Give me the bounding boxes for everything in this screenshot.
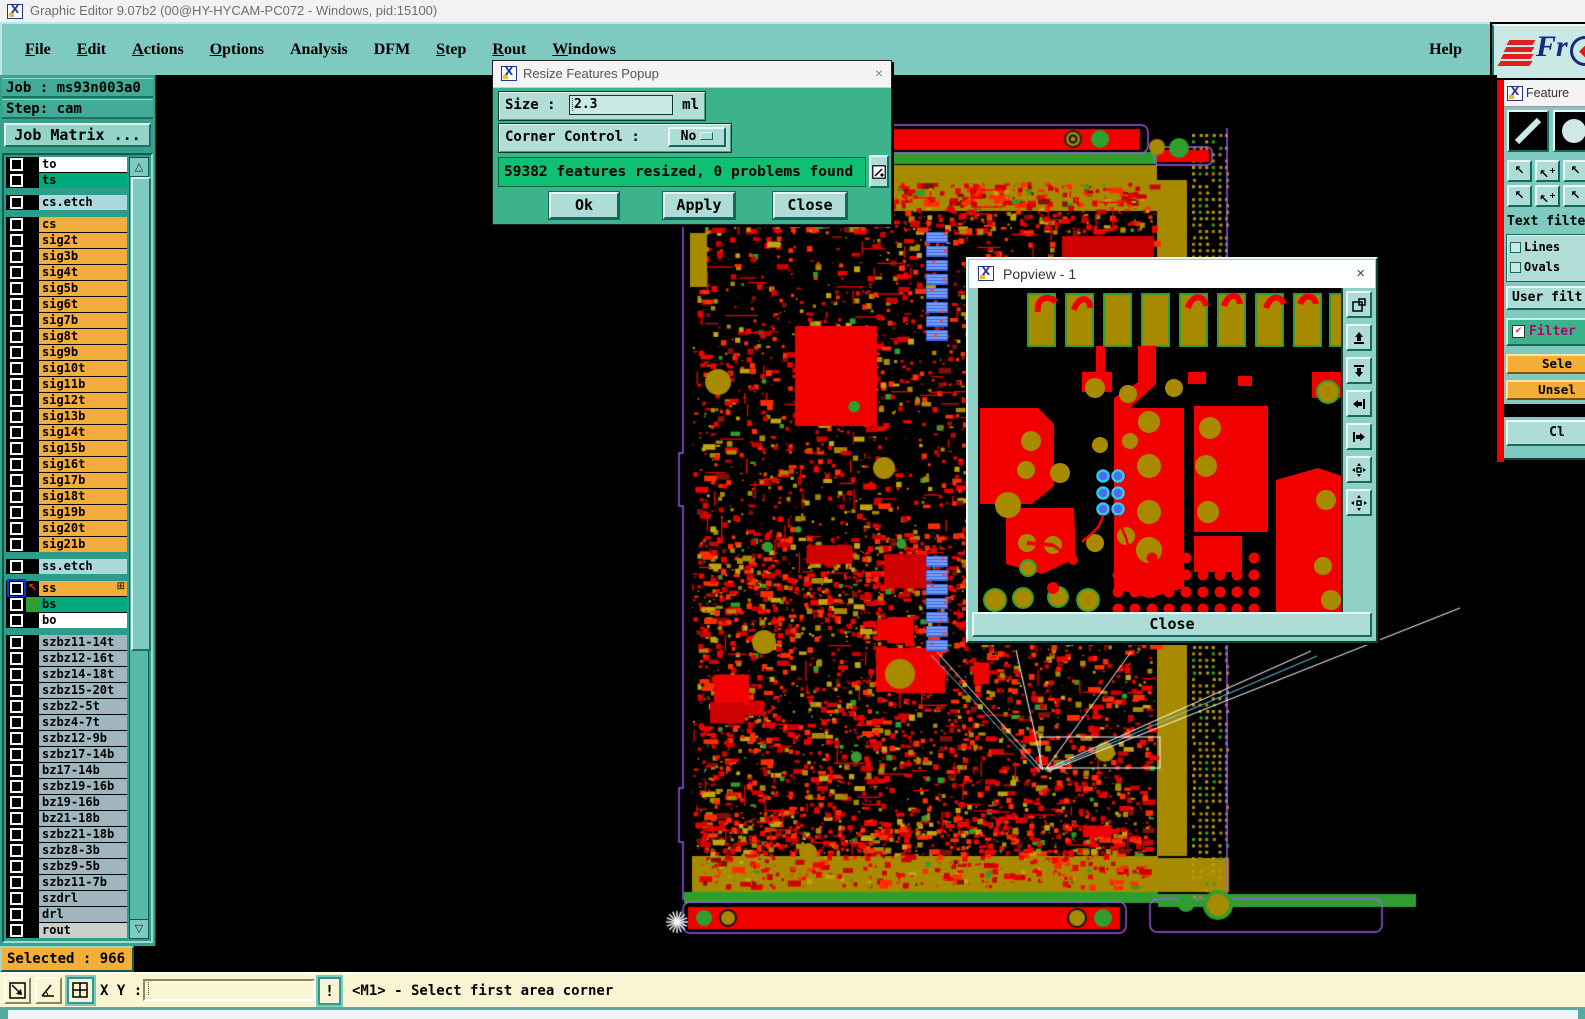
logo-text: Fr xyxy=(1536,30,1568,64)
angle-icon xyxy=(40,982,57,999)
layer-name[interactable]: sig8t xyxy=(39,329,127,344)
layer-row[interactable]: drl xyxy=(6,907,127,922)
popview-zoom-out-button[interactable] xyxy=(1346,489,1372,516)
layer-checkbox[interactable] xyxy=(6,651,26,666)
layer-checkbox[interactable] xyxy=(6,597,26,612)
layer-checkbox[interactable] xyxy=(6,715,26,730)
layer-name[interactable]: drl xyxy=(39,907,127,922)
layer-spacer xyxy=(26,329,39,344)
layer-row[interactable]: sig11b xyxy=(6,377,127,392)
popview-pan-up-button[interactable] xyxy=(1346,324,1372,351)
app-icon: X xyxy=(501,66,517,81)
menu-actions[interactable]: Actions xyxy=(119,38,197,62)
layer-spacer xyxy=(26,265,39,280)
layer-row[interactable]: ts xyxy=(6,173,127,188)
size-label: Size : xyxy=(505,97,556,113)
layer-checkbox[interactable] xyxy=(6,157,26,172)
layer-name[interactable]: sig9b xyxy=(39,345,127,360)
xy-label: X Y : xyxy=(100,983,142,999)
layer-name[interactable]: sig6t xyxy=(39,297,127,312)
layer-name[interactable]: szbz12-9b xyxy=(39,731,127,746)
size-input[interactable]: 2.3 xyxy=(569,95,673,115)
layer-row[interactable]: bs xyxy=(6,597,127,612)
application-window: X Graphic Editor 9.07b2 (00@HY-HYCAM-PC0… xyxy=(0,0,1585,1019)
layer-name[interactable]: sig12t xyxy=(39,393,127,408)
layer-row[interactable]: sig19b xyxy=(6,505,127,520)
resize-result-message: 59382 features resized, 0 problems found xyxy=(498,157,866,187)
layer-checkbox[interactable] xyxy=(6,473,26,488)
layer-grid-icon: ⊞ xyxy=(117,581,125,592)
menu-items: FileEditActionsOptionsAnalysisDFMStepRou… xyxy=(12,38,629,62)
layer-row[interactable]: ↖ss⊞ xyxy=(6,581,127,596)
layer-checkbox[interactable] xyxy=(6,345,26,360)
layer-name[interactable]: sig16t xyxy=(39,457,127,472)
layer-checkbox[interactable] xyxy=(6,233,26,248)
layer-spacer xyxy=(26,683,39,698)
layer-spacer xyxy=(26,489,39,504)
layer-checkbox[interactable] xyxy=(6,265,26,280)
layer-row[interactable]: sig7b xyxy=(6,313,127,328)
layer-row[interactable]: bz21-18b xyxy=(6,811,127,826)
layer-spacer xyxy=(26,747,39,762)
option-menu-icon xyxy=(700,132,713,140)
layer-name[interactable]: szbz14-18t xyxy=(39,667,127,682)
layer-checkbox[interactable] xyxy=(6,195,26,210)
layer-row[interactable]: sig8t xyxy=(6,329,127,344)
layer-spacer xyxy=(26,811,39,826)
layer-name[interactable]: sig5b xyxy=(39,281,127,296)
unselect-extra-button[interactable]: ↖ xyxy=(1563,185,1585,207)
logo-ring-icon xyxy=(1570,36,1585,66)
layer-row[interactable]: sig21b xyxy=(6,537,127,552)
layer-spacer xyxy=(26,715,39,730)
layer-spacer xyxy=(26,345,39,360)
layer-spacer xyxy=(26,473,39,488)
layer-row[interactable]: bz19-16b xyxy=(6,795,127,810)
layer-name[interactable]: sig10t xyxy=(39,361,127,376)
layer-spacer xyxy=(26,249,39,264)
layer-name[interactable]: cs xyxy=(39,217,127,232)
layer-checkbox[interactable] xyxy=(6,581,26,596)
menu-edit[interactable]: Edit xyxy=(64,38,119,62)
layer-checkbox[interactable] xyxy=(6,635,26,650)
select-extra-button[interactable]: ↖ xyxy=(1563,160,1585,182)
layer-name[interactable]: szbz17-14b xyxy=(39,747,127,762)
layer-name[interactable]: szbz21-18b xyxy=(39,827,127,842)
layer-checkbox[interactable] xyxy=(6,699,26,714)
layer-checkbox[interactable] xyxy=(6,923,26,938)
shape-filter-frame: Lines Ovals xyxy=(1506,234,1585,282)
layer-row[interactable]: szbz19-16b xyxy=(6,779,127,794)
popview-copy-window-button[interactable] xyxy=(1346,291,1372,318)
popview-window: X Popview - 1 × xyxy=(966,257,1378,643)
layer-spacer xyxy=(26,731,39,746)
layer-row[interactable]: sig15b xyxy=(6,441,127,456)
layer-spacer xyxy=(26,763,39,778)
layer-name[interactable]: sig13b xyxy=(39,409,127,424)
layer-checkbox[interactable] xyxy=(6,667,26,682)
ok-button[interactable]: Ok xyxy=(549,192,619,219)
layer-name[interactable]: ts xyxy=(39,173,127,188)
scroll-up-icon[interactable]: △ xyxy=(130,158,148,177)
layer-spacer xyxy=(26,457,39,472)
features-panel-title-bar[interactable]: X Feature xyxy=(1504,82,1585,107)
panel-accent-bar xyxy=(1497,80,1504,462)
layer-checkbox[interactable] xyxy=(6,859,26,874)
layer-row[interactable]: szbz4-7t xyxy=(6,715,127,730)
layer-name[interactable]: to xyxy=(39,157,127,172)
layer-checkbox[interactable] xyxy=(6,425,26,440)
secondary-status-bar xyxy=(0,1007,1585,1019)
layer-spacer xyxy=(26,667,39,682)
logo-dash xyxy=(1501,54,1534,59)
layer-row[interactable]: sig13b xyxy=(6,409,127,424)
dialog-title: Resize Features Popup xyxy=(523,66,659,81)
layer-row[interactable]: szbz8-3b xyxy=(6,843,127,858)
select-arrow-button[interactable]: ↖ xyxy=(1507,160,1532,182)
layer-row[interactable]: sig9b xyxy=(6,345,127,360)
layer-row[interactable]: cs.etch xyxy=(6,195,127,210)
layer-name[interactable]: sig21b xyxy=(39,537,127,552)
logo-dash xyxy=(1498,61,1533,66)
layer-row[interactable]: sig12t xyxy=(6,393,127,408)
layer-checkbox[interactable] xyxy=(6,281,26,296)
layer-name[interactable]: sig11b xyxy=(39,377,127,392)
layer-spacer xyxy=(26,425,39,440)
layer-checkbox[interactable] xyxy=(6,249,26,264)
arrows-inward-icon xyxy=(1351,462,1367,478)
close-button[interactable]: Close xyxy=(773,192,847,219)
layer-name[interactable]: szbz11-14t xyxy=(39,635,127,650)
layer-checkbox[interactable] xyxy=(6,409,26,424)
menu-file[interactable]: File xyxy=(12,38,64,62)
unselect-button[interactable]: Unsel xyxy=(1506,380,1585,400)
menu-rout[interactable]: Rout xyxy=(479,38,539,62)
layer-checkbox[interactable] xyxy=(6,779,26,794)
layer-checkbox[interactable] xyxy=(6,489,26,504)
circle-icon xyxy=(1557,114,1585,148)
layer-name[interactable]: sig2t xyxy=(39,233,127,248)
popview-toolbar xyxy=(1341,288,1375,612)
layer-checkbox[interactable] xyxy=(6,521,26,536)
layer-name[interactable]: sig18t xyxy=(39,489,127,504)
layer-row[interactable]: szbz15-20t xyxy=(6,683,127,698)
layer-row[interactable]: sig18t xyxy=(6,489,127,504)
select-button[interactable]: Sele xyxy=(1506,354,1585,374)
features-filter-panel: X Feature ↖ ↖+ ↖ ↖ ↖+ ↖ Text filte Lines… xyxy=(1504,80,1585,460)
logo-dash xyxy=(1504,47,1535,52)
step-label: Step: cam xyxy=(2,99,153,119)
arrow-down-icon xyxy=(1351,363,1367,379)
layer-row[interactable]: rout xyxy=(6,923,127,938)
layer-name[interactable]: szbz4-7t xyxy=(39,715,127,730)
layer-row[interactable]: sig20t xyxy=(6,521,127,536)
layer-spacer xyxy=(26,891,39,906)
features-panel-title: Feature xyxy=(1526,86,1569,100)
layer-row[interactable]: to xyxy=(6,157,127,172)
size-unit-label: ml xyxy=(682,97,699,113)
scroll-down-icon[interactable]: ▽ xyxy=(130,919,148,938)
menu-dfm[interactable]: DFM xyxy=(361,38,423,62)
filter-toggle[interactable]: ✔Filter xyxy=(1506,318,1585,346)
menu-step[interactable]: Step xyxy=(423,38,479,62)
layer-row[interactable]: cs xyxy=(6,217,127,232)
unselect-add-arrow-button[interactable]: ↖+ xyxy=(1535,185,1560,207)
layer-checkbox[interactable] xyxy=(6,329,26,344)
layer-spacer xyxy=(26,795,39,810)
layer-row[interactable]: sig14t xyxy=(6,425,127,440)
layer-spacer xyxy=(26,779,39,794)
window-copy-icon xyxy=(1351,297,1367,313)
layer-name[interactable]: szbz2-5t xyxy=(39,699,127,714)
gauge-button[interactable] xyxy=(869,155,889,188)
measure-tool-button[interactable] xyxy=(4,977,31,1004)
layer-spacer xyxy=(26,859,39,874)
layer-spacer xyxy=(26,233,39,248)
layer-name[interactable]: sig3b xyxy=(39,249,127,264)
layer-spacer xyxy=(26,157,39,172)
layer-row[interactable]: sig4t xyxy=(6,265,127,280)
layer-row[interactable]: szbz2-5t xyxy=(6,699,127,714)
alert-button[interactable]: ! xyxy=(318,977,341,1005)
title-bar[interactable]: X Graphic Editor 9.07b2 (00@HY-HYCAM-PC0… xyxy=(0,0,1585,22)
layer-name[interactable]: bo xyxy=(39,613,127,628)
filter-checkbox[interactable]: ✔ xyxy=(1512,325,1525,338)
popview-pan-down-button[interactable] xyxy=(1346,357,1372,384)
layer-row[interactable]: sig6t xyxy=(6,297,127,312)
layer-name[interactable]: bs xyxy=(39,597,127,612)
app-icon: X xyxy=(1507,86,1523,101)
layer-checkbox[interactable] xyxy=(6,559,26,574)
layer-row[interactable]: sig5b xyxy=(6,281,127,296)
layer-checkbox[interactable] xyxy=(6,747,26,762)
layer-name[interactable]: ss.etch xyxy=(39,559,127,574)
gauge-icon xyxy=(872,165,886,179)
layer-color-swatch xyxy=(26,597,39,612)
layer-row[interactable]: szdrl xyxy=(6,891,127,906)
menu-windows[interactable]: Windows xyxy=(539,38,629,62)
layer-name[interactable]: szbz8-3b xyxy=(39,843,127,858)
layer-spacer xyxy=(26,651,39,666)
line-feature-button[interactable] xyxy=(1507,110,1549,152)
corner-row: Corner Control : No xyxy=(498,123,732,153)
layer-row[interactable]: szbz12-9b xyxy=(6,731,127,746)
layer-spacer xyxy=(26,281,39,296)
layer-name[interactable]: rout xyxy=(39,923,127,938)
popview-close-icon[interactable]: × xyxy=(1356,265,1365,282)
layer-spacer xyxy=(26,537,39,552)
layer-spacer xyxy=(26,635,39,650)
arrow-up-icon xyxy=(1351,330,1367,346)
layer-checkbox[interactable] xyxy=(6,875,26,890)
xy-input[interactable] xyxy=(143,979,315,1001)
resize-features-dialog: X Resize Features Popup × Size : 2.3 ml … xyxy=(492,60,892,225)
layer-row[interactable]: szbz12-16t xyxy=(6,651,127,666)
layer-checkbox[interactable] xyxy=(6,297,26,312)
popview-pan-right-button[interactable] xyxy=(1346,423,1372,450)
apply-button[interactable]: Apply xyxy=(663,192,735,219)
layer-row[interactable]: szbz11-14t xyxy=(6,635,127,650)
select-add-arrow-button[interactable]: ↖+ xyxy=(1535,160,1560,182)
layer-checkbox[interactable] xyxy=(6,731,26,746)
window-grid-icon xyxy=(72,982,89,999)
layer-checkbox[interactable] xyxy=(6,613,26,628)
layer-checkbox[interactable] xyxy=(6,377,26,392)
unselect-arrow-button[interactable]: ↖ xyxy=(1507,185,1532,207)
layer-spacer xyxy=(26,393,39,408)
layer-spacer xyxy=(26,875,39,890)
layer-name[interactable]: cs.etch xyxy=(39,195,127,210)
job-matrix-button[interactable]: Job Matrix ... xyxy=(4,123,151,147)
layer-name[interactable]: sig19b xyxy=(39,505,127,520)
layer-checkbox[interactable] xyxy=(6,843,26,858)
layer-row[interactable]: szbz11-7b xyxy=(6,875,127,890)
layer-name[interactable]: bz19-16b xyxy=(39,795,127,810)
active-layer-arrow-icon: ↖ xyxy=(26,581,39,596)
layer-row[interactable]: sig16t xyxy=(6,457,127,472)
layer-spacer xyxy=(26,313,39,328)
layer-name[interactable]: sig14t xyxy=(39,425,127,440)
layer-checkbox[interactable] xyxy=(6,811,26,826)
layer-name[interactable]: sig7b xyxy=(39,313,127,328)
layer-spacer xyxy=(26,195,39,210)
layer-checkbox[interactable] xyxy=(6,795,26,810)
text-filter-label: Text filte xyxy=(1507,214,1585,229)
layer-spacer xyxy=(26,699,39,714)
popview-zoom-in-button[interactable] xyxy=(1346,456,1372,483)
status-message: <M1> - Select first area corner xyxy=(352,983,613,999)
layer-checkbox[interactable] xyxy=(6,827,26,842)
layer-list: totscs.etchcssig2tsig3bsig4tsig5bsig6tsi… xyxy=(6,157,127,939)
panel-close-button[interactable]: Cl xyxy=(1506,420,1585,446)
layer-spacer xyxy=(26,217,39,232)
lines-checkbox[interactable] xyxy=(1510,242,1521,253)
layer-spacer xyxy=(26,505,39,520)
popview-title-bar[interactable]: X Popview - 1 × xyxy=(969,260,1375,289)
layer-checkbox[interactable] xyxy=(6,683,26,698)
layer-row[interactable]: bo xyxy=(6,613,127,628)
brand-logo: Fr xyxy=(1492,24,1585,78)
layer-spacer xyxy=(26,361,39,376)
popview-title: Popview - 1 xyxy=(1003,266,1076,282)
ovals-checkbox[interactable] xyxy=(1510,262,1521,273)
scrollbar-thumb[interactable] xyxy=(131,177,151,651)
layer-name[interactable]: bz21-18b xyxy=(39,811,127,826)
pad-feature-button[interactable] xyxy=(1553,110,1585,152)
diagonal-arrow-icon xyxy=(9,982,26,999)
layer-spacer xyxy=(26,827,39,842)
layer-row[interactable]: szbz14-18t xyxy=(6,667,127,682)
layer-scrollbar[interactable]: △ ▽ xyxy=(129,157,149,939)
layer-row[interactable]: sig17b xyxy=(6,473,127,488)
logo-dash xyxy=(1507,40,1536,45)
layer-spacer xyxy=(26,297,39,312)
layer-row[interactable]: sig3b xyxy=(6,249,127,264)
lines-checkbox-row[interactable]: Lines xyxy=(1510,240,1560,254)
layer-row[interactable]: sig2t xyxy=(6,233,127,248)
layer-spacer xyxy=(26,907,39,922)
layer-checkbox[interactable] xyxy=(6,907,26,922)
layer-checkbox[interactable] xyxy=(6,313,26,328)
layer-checkbox[interactable] xyxy=(6,891,26,906)
angle-tool-button[interactable] xyxy=(35,977,62,1004)
ovals-checkbox-row[interactable]: Ovals xyxy=(1510,260,1560,274)
layer-row[interactable]: szbz21-18b xyxy=(6,827,127,842)
window-title: Graphic Editor 9.07b2 (00@HY-HYCAM-PC072… xyxy=(30,3,437,18)
layer-checkbox[interactable] xyxy=(6,441,26,456)
dialog-close-icon[interactable]: × xyxy=(875,65,883,81)
layer-checkbox[interactable] xyxy=(6,537,26,552)
arrows-outward-icon xyxy=(1351,495,1367,511)
arrow-left-icon xyxy=(1351,396,1367,412)
arrow-right-icon xyxy=(1351,429,1367,445)
layer-row[interactable]: ss.etch xyxy=(6,559,127,574)
layer-name[interactable]: sig17b xyxy=(39,473,127,488)
sidebar: Job : ms93n003a0 Step: cam Job Matrix ..… xyxy=(0,75,156,946)
popview-board-art xyxy=(978,288,1342,612)
layer-name[interactable]: szbz19-16b xyxy=(39,779,127,794)
menu-help[interactable]: Help xyxy=(1429,41,1462,59)
layer-spacer xyxy=(26,377,39,392)
layer-row[interactable]: sig10t xyxy=(6,361,127,376)
layer-checkbox[interactable] xyxy=(6,505,26,520)
layer-spacer xyxy=(26,521,39,536)
bottom-toolbar: X Y : ! <M1> - Select first area corner xyxy=(0,972,1585,1009)
layer-name[interactable]: szbz11-7b xyxy=(39,875,127,890)
user-filter-button[interactable]: User filt xyxy=(1506,286,1585,310)
layer-row[interactable]: szbz9-5b xyxy=(6,859,127,874)
job-label: Job : ms93n003a0 xyxy=(2,78,153,98)
layer-spacer xyxy=(26,409,39,424)
corner-control-dropdown[interactable]: No xyxy=(668,127,726,147)
layer-name[interactable]: szdrl xyxy=(39,891,127,906)
popview-close-button[interactable]: Close xyxy=(972,612,1372,637)
popview-canvas[interactable] xyxy=(978,288,1342,612)
layer-name[interactable]: sig4t xyxy=(39,265,127,280)
layer-list-frame: totscs.etchcssig2tsig3bsig4tsig5bsig6tsi… xyxy=(2,153,153,943)
selected-count: Selected : 966 xyxy=(0,946,134,972)
layer-name[interactable]: sig20t xyxy=(39,521,127,536)
layer-name[interactable]: szbz9-5b xyxy=(39,859,127,874)
layer-name[interactable]: bz17-14b xyxy=(39,763,127,778)
dialog-title-bar[interactable]: X Resize Features Popup × xyxy=(493,61,891,88)
menu-analysis[interactable]: Analysis xyxy=(277,38,361,62)
layer-spacer xyxy=(26,843,39,858)
layer-checkbox[interactable] xyxy=(6,173,26,188)
layer-spacer xyxy=(26,441,39,456)
menu-options[interactable]: Options xyxy=(197,38,277,62)
line-icon xyxy=(1511,114,1545,148)
grid-view-button[interactable] xyxy=(67,977,94,1004)
layer-spacer xyxy=(26,559,39,574)
app-icon: X xyxy=(978,266,994,281)
layer-checkbox[interactable] xyxy=(6,763,26,778)
layer-name[interactable]: sig15b xyxy=(39,441,127,456)
layer-row[interactable]: szbz17-14b xyxy=(6,747,127,762)
popview-pan-left-button[interactable] xyxy=(1346,390,1372,417)
layer-spacer xyxy=(26,613,39,628)
size-row: Size : 2.3 ml xyxy=(498,91,706,121)
layer-checkbox[interactable] xyxy=(6,361,26,376)
layer-spacer xyxy=(26,923,39,938)
layer-checkbox[interactable] xyxy=(6,217,26,232)
layer-checkbox[interactable] xyxy=(6,457,26,472)
layer-row[interactable]: bz17-14b xyxy=(6,763,127,778)
layer-name[interactable]: szbz12-16t xyxy=(39,651,127,666)
layer-name[interactable]: ss⊞ xyxy=(39,581,127,596)
layer-name[interactable]: szbz15-20t xyxy=(39,683,127,698)
layer-checkbox[interactable] xyxy=(6,393,26,408)
